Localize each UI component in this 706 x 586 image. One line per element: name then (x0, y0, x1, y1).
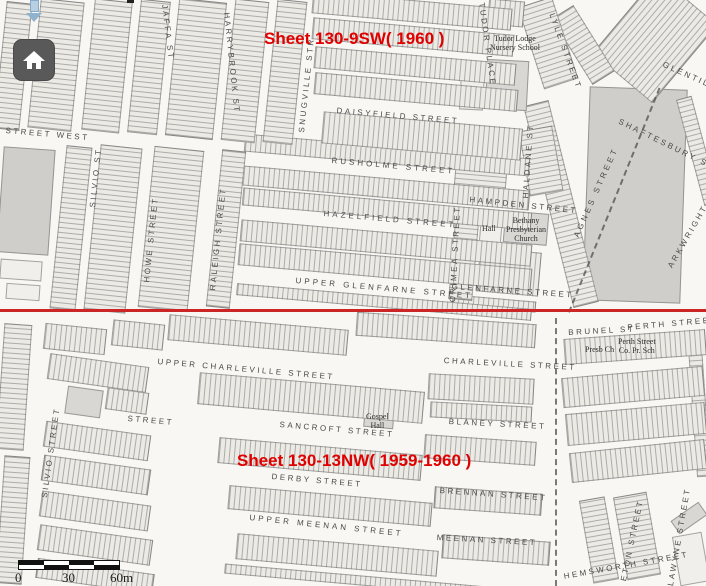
tick-mark (127, 0, 134, 3)
poi-label: Bethany Presbyterian Church (506, 216, 546, 244)
agnes-street-boundary-dashes (555, 318, 557, 586)
poi-label: Perth Street Co. Pr. Sch (618, 337, 656, 355)
scale-label-0: 0 (15, 570, 22, 586)
map-block (43, 421, 152, 461)
home-button[interactable] (13, 39, 55, 81)
map-block (427, 373, 534, 405)
scale-bar: 0 30 60m (18, 560, 120, 570)
home-icon (22, 48, 46, 72)
map-block (197, 372, 425, 424)
map-block (47, 353, 150, 393)
street-label: STREET (127, 414, 174, 427)
map-block (64, 386, 104, 419)
map-block (565, 402, 706, 446)
map-block (167, 314, 349, 356)
scale-label-60m: 60m (110, 570, 133, 586)
sheet-boundary-line (0, 309, 706, 312)
poi-label: Gospel Hall (366, 412, 389, 430)
sheet-annotation-bottom: Sheet 130-13NW( 1959-1960 ) (237, 451, 471, 471)
scale-label-30: 30 (62, 570, 75, 586)
map-block (43, 323, 107, 355)
poi-label: Tudor Lodge Nursery School (490, 34, 540, 52)
sheet-annotation-top: Sheet 130-9SW( 1960 ) (264, 29, 444, 49)
map-block (5, 283, 40, 301)
map-block (165, 0, 227, 140)
poi-label: Hall (482, 224, 496, 233)
map-block (569, 439, 706, 483)
map-marker-icon (30, 0, 39, 12)
street-label: BLANEY STREET (449, 417, 547, 431)
map-block (0, 259, 43, 282)
map-block (81, 0, 133, 134)
poi-label: Presb Ch (585, 345, 614, 354)
map-block (0, 323, 32, 451)
map-block (111, 319, 165, 350)
map-block (41, 455, 152, 496)
map-canvas[interactable]: Sheet 130-9SW( 1960 ) Sheet 130-13NW( 19… (0, 0, 706, 586)
map-block (561, 366, 705, 408)
map-block (0, 146, 56, 255)
street-label: SILVIO STREET (40, 406, 62, 498)
map-marker-arrow-icon (26, 13, 42, 22)
scale-bar-segments (18, 560, 120, 570)
